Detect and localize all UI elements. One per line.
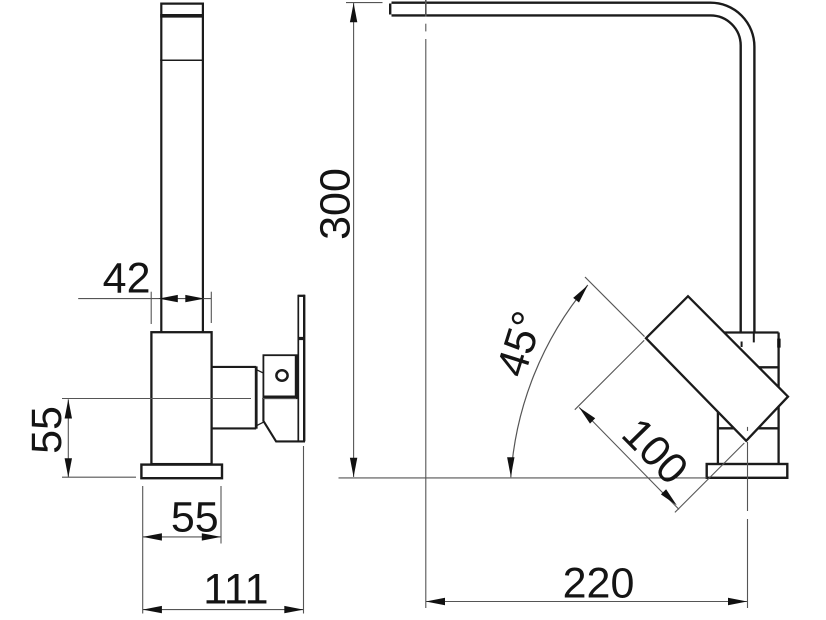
svg-text:42: 42 [103, 255, 151, 303]
svg-text:300: 300 [312, 168, 360, 240]
svg-text:220: 220 [563, 560, 635, 608]
svg-text:55: 55 [23, 406, 71, 454]
svg-text:111: 111 [203, 566, 268, 614]
svg-text:55: 55 [171, 494, 219, 542]
